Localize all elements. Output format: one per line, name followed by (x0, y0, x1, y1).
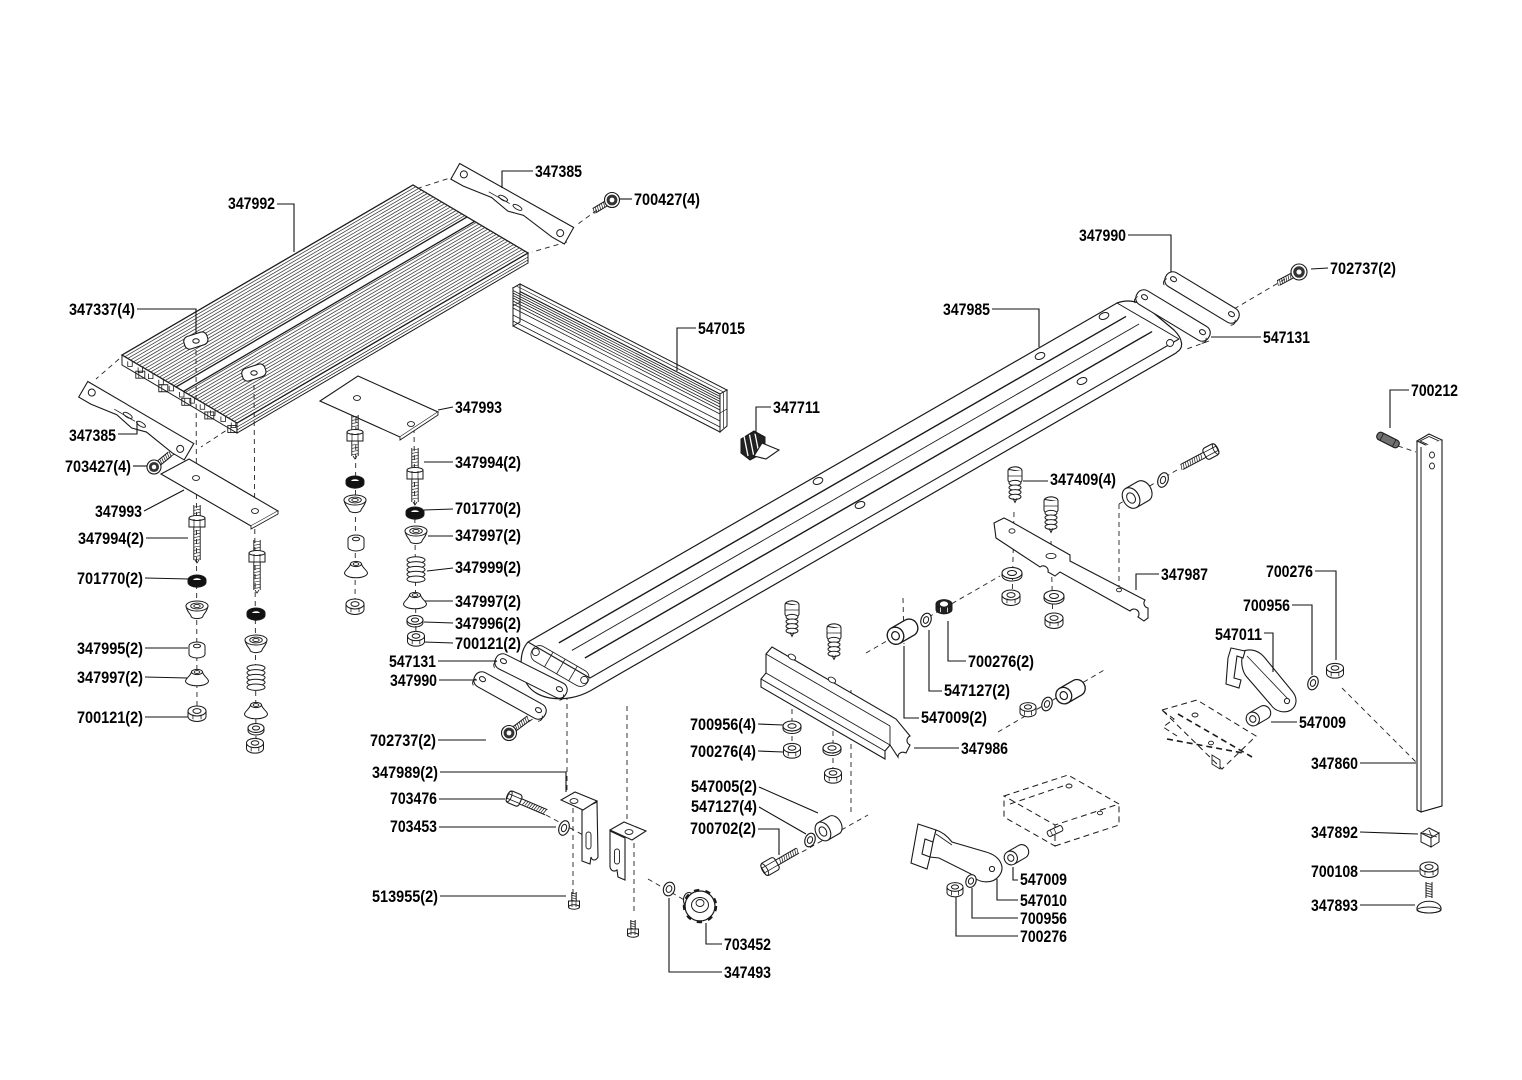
svg-text:547009: 547009 (1299, 714, 1346, 732)
svg-text:547010: 547010 (1020, 892, 1067, 910)
svg-text:347990: 347990 (1079, 227, 1126, 245)
svg-text:700121(2): 700121(2) (455, 635, 521, 653)
svg-text:547009: 547009 (1020, 871, 1067, 889)
svg-text:547127(2): 547127(2) (944, 682, 1010, 700)
svg-text:700276: 700276 (1266, 563, 1313, 581)
svg-text:347994(2): 347994(2) (455, 454, 521, 472)
svg-text:702737(2): 702737(2) (370, 732, 436, 750)
svg-text:347986: 347986 (961, 740, 1008, 758)
svg-text:547011: 547011 (1215, 626, 1262, 644)
svg-text:347893: 347893 (1311, 897, 1358, 915)
svg-text:700427(4): 700427(4) (634, 191, 700, 209)
svg-text:347860: 347860 (1311, 755, 1358, 773)
svg-text:347999(2): 347999(2) (455, 559, 521, 577)
svg-text:347337(4): 347337(4) (69, 301, 135, 319)
svg-text:513955(2): 513955(2) (372, 888, 438, 906)
svg-text:700276(2): 700276(2) (968, 653, 1034, 671)
svg-text:347997(2): 347997(2) (455, 593, 521, 611)
svg-text:700121(2): 700121(2) (77, 709, 143, 727)
svg-text:347385: 347385 (535, 163, 582, 181)
svg-text:347993: 347993 (455, 399, 502, 417)
svg-text:347985: 347985 (943, 301, 990, 319)
svg-text:347987: 347987 (1161, 566, 1208, 584)
svg-text:547131: 547131 (389, 653, 436, 671)
svg-text:703453: 703453 (390, 818, 437, 836)
svg-text:347892: 347892 (1311, 824, 1358, 842)
svg-text:703427(4): 703427(4) (65, 458, 131, 476)
svg-text:547127(4): 547127(4) (691, 798, 757, 816)
svg-text:700108: 700108 (1311, 863, 1358, 881)
svg-text:347992: 347992 (228, 195, 275, 213)
svg-text:701770(2): 701770(2) (77, 570, 143, 588)
svg-text:703452: 703452 (724, 936, 771, 954)
svg-text:347493: 347493 (724, 964, 771, 982)
svg-text:700702(2): 700702(2) (690, 820, 756, 838)
svg-text:700956: 700956 (1020, 910, 1067, 928)
svg-text:701770(2): 701770(2) (455, 500, 521, 518)
svg-text:347711: 347711 (773, 399, 820, 417)
svg-text:347994(2): 347994(2) (78, 530, 144, 548)
svg-text:700956(4): 700956(4) (690, 716, 756, 734)
svg-text:702737(2): 702737(2) (1330, 260, 1396, 278)
svg-text:703476: 703476 (390, 790, 437, 808)
svg-text:547005(2): 547005(2) (691, 778, 757, 796)
svg-text:347409(4): 347409(4) (1050, 471, 1116, 489)
svg-text:700276(4): 700276(4) (690, 743, 756, 761)
svg-text:347997(2): 347997(2) (77, 669, 143, 687)
svg-text:547009(2): 547009(2) (921, 709, 987, 727)
svg-text:347997(2): 347997(2) (455, 527, 521, 545)
svg-text:547015: 547015 (698, 320, 745, 338)
svg-text:347996(2): 347996(2) (455, 615, 521, 633)
svg-text:700276: 700276 (1020, 928, 1067, 946)
svg-text:700212: 700212 (1411, 382, 1458, 400)
svg-text:347990: 347990 (390, 672, 437, 690)
svg-text:347385: 347385 (69, 427, 116, 445)
svg-text:547131: 547131 (1263, 329, 1310, 347)
svg-text:347993: 347993 (95, 503, 142, 521)
svg-text:700956: 700956 (1243, 597, 1290, 615)
svg-text:347995(2): 347995(2) (77, 640, 143, 658)
svg-text:347989(2): 347989(2) (372, 764, 438, 782)
